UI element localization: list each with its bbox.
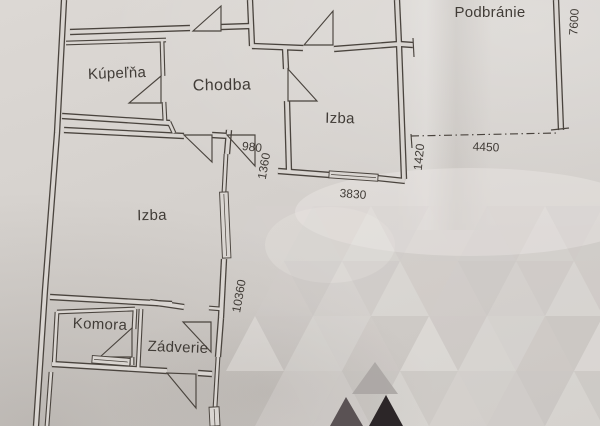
wall-jamb-line [413,38,414,57]
scanned-floor-plan-page: Kúpeľňa Chodba Izba Izba Komora Zádverie… [0,0,600,426]
watermark-mosaic [226,206,600,426]
door-swing-icon [167,373,196,408]
room-label-podbranie: Podbránie [454,4,525,21]
window-icon [220,192,231,258]
dimension-label-1360: 1360 [255,151,273,180]
room-label-izba-lower: Izba [137,207,167,225]
room-label-izba-upper: Izba [325,110,355,128]
dimension-label-7600: 7600 [566,8,581,36]
boundary-dashdot-line [411,133,557,136]
door-swing-icon [288,69,317,101]
floor-plan-drawing: Kúpeľňa Chodba Izba Izba Komora Zádverie… [0,0,600,426]
dimension-label-10360: 10360 [229,278,249,314]
room-label-kupelna: Kúpeľňa [88,64,147,83]
detail-lines [411,38,569,148]
room-label-zadverie: Zádverie [147,338,208,357]
door-swing-icon [184,135,212,162]
door-swing-icon [304,11,333,45]
room-label-komora: Komora [73,315,128,334]
dimension-label-1420: 1420 [411,143,428,171]
window-icon [209,407,220,426]
window-icon [329,171,378,181]
door-swing-icon [193,6,221,31]
dimension-label-4450: 4450 [472,140,499,155]
room-label-chodba: Chodba [193,76,252,94]
dimension-label-3830: 3830 [339,186,367,202]
